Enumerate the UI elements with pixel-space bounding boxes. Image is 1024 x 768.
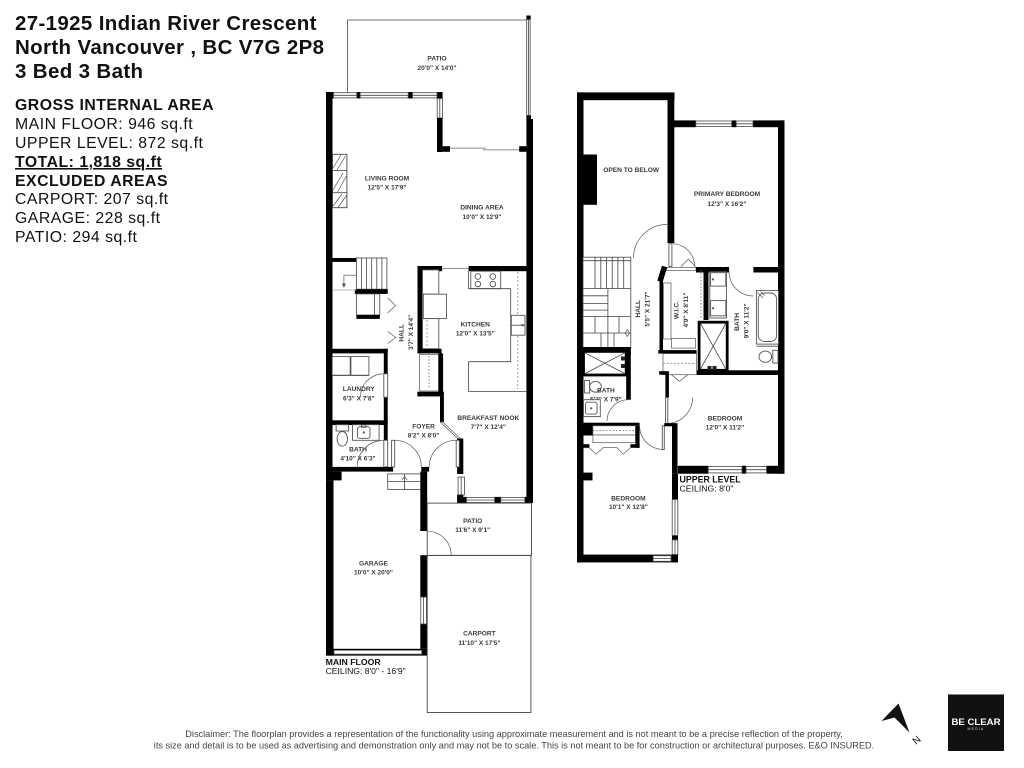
svg-text:6'3" X 7'8": 6'3" X 7'8" (343, 396, 375, 403)
svg-text:10'0" X 12'9": 10'0" X 12'9" (463, 214, 502, 221)
svg-text:MAIN FLOOR: 946 sq.ft: MAIN FLOOR: 946 sq.ft (15, 116, 193, 133)
svg-text:PATIO: PATIO (427, 55, 446, 62)
svg-text:10'0" X 20'0": 10'0" X 20'0" (354, 570, 393, 577)
svg-text:FOYER: FOYER (412, 424, 435, 431)
svg-text:BEDROOM: BEDROOM (708, 415, 743, 422)
svg-text:BREAKFAST NOOK: BREAKFAST NOOK (457, 415, 519, 422)
svg-text:North Vancouver , BC V7G 2P8: North Vancouver , BC V7G 2P8 (15, 36, 324, 59)
svg-text:GARAGE: 228 sq.ft: GARAGE: 228 sq.ft (15, 210, 161, 227)
svg-text:GROSS INTERNAL AREA: GROSS INTERNAL AREA (15, 97, 214, 114)
svg-text:3 Bed 3 Bath: 3 Bed 3 Bath (15, 60, 143, 83)
svg-text:8'2" X 8'0": 8'2" X 8'0" (408, 433, 440, 440)
svg-text:3'7" X 14'4": 3'7" X 14'4" (408, 315, 415, 350)
svg-text:UPPER LEVEL: 872 sq.ft: UPPER LEVEL: 872 sq.ft (15, 135, 203, 152)
svg-text:CARPORT: 207 sq.ft: CARPORT: 207 sq.ft (15, 191, 169, 208)
svg-text:W.I.C.: W.I.C. (674, 301, 681, 319)
svg-text:PATIO: 294 sq.ft: PATIO: 294 sq.ft (15, 229, 138, 246)
svg-text:12'3" X 16'2": 12'3" X 16'2" (708, 201, 747, 208)
svg-text:10'1" X 12'8": 10'1" X 12'8" (609, 504, 648, 511)
svg-text:EXCLUDED AREAS: EXCLUDED AREAS (15, 173, 168, 190)
svg-text:11'10" X 17'5": 11'10" X 17'5" (458, 640, 500, 647)
svg-text:BEDROOM: BEDROOM (611, 496, 646, 503)
svg-text:11'6" X 9'1": 11'6" X 9'1" (455, 527, 490, 534)
svg-text:KITCHEN: KITCHEN (461, 321, 491, 328)
svg-text:MEDIA: MEDIA (968, 727, 985, 731)
svg-text:HALL: HALL (635, 300, 642, 318)
svg-text:LIVING ROOM: LIVING ROOM (365, 175, 410, 182)
svg-text:12'0" X 11'2": 12'0" X 11'2" (706, 424, 745, 431)
svg-text:TOTAL: 1,818 sq.ft: TOTAL: 1,818 sq.ft (15, 154, 162, 171)
svg-text:BATH: BATH (734, 313, 741, 331)
svg-text:OPEN TO BELOW: OPEN TO BELOW (603, 167, 660, 174)
svg-text:BATH: BATH (597, 387, 615, 394)
svg-text:12'0" X 13'5": 12'0" X 13'5" (456, 331, 495, 338)
svg-text:its size and detail is to be u: its size and detail is to be used as adv… (154, 741, 874, 751)
svg-text:CEILING: 8'0": CEILING: 8'0" (680, 484, 734, 494)
svg-text:DINING AREA: DINING AREA (460, 205, 504, 212)
svg-text:CARPORT: CARPORT (463, 631, 496, 638)
svg-text:LAUNDRY: LAUNDRY (343, 386, 376, 393)
svg-text:CEILING: 8'0" - 16'9": CEILING: 8'0" - 16'9" (326, 666, 406, 676)
svg-text:Disclaimer: The floorplan prov: Disclaimer: The floorplan provides a rep… (185, 729, 842, 739)
svg-text:20'0" X 14'0": 20'0" X 14'0" (418, 65, 457, 72)
svg-text:9'0" X 11'2": 9'0" X 11'2" (743, 303, 750, 338)
svg-text:5'5" X 21'7": 5'5" X 21'7" (645, 291, 652, 326)
svg-text:27-1925 Indian River Crescent: 27-1925 Indian River Crescent (15, 12, 317, 35)
svg-text:PRIMARY BEDROOM: PRIMARY BEDROOM (694, 191, 761, 198)
svg-text:PATIO: PATIO (463, 518, 482, 525)
svg-text:7'7" X 12'4": 7'7" X 12'4" (471, 424, 506, 431)
svg-text:HALL: HALL (399, 324, 406, 342)
svg-text:4'9" X 8'11": 4'9" X 8'11" (683, 293, 690, 328)
svg-text:GARAGE: GARAGE (359, 560, 389, 567)
svg-text:BATH: BATH (349, 446, 367, 453)
svg-text:12'5" X 17'9": 12'5" X 17'9" (368, 185, 407, 192)
